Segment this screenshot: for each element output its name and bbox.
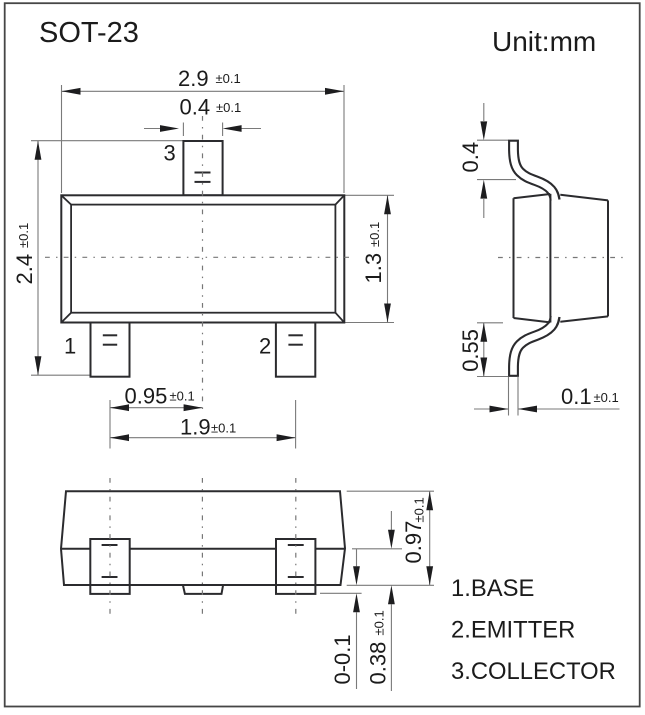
svg-text:±0.1: ±0.1 <box>216 100 241 115</box>
svg-text:0.55: 0.55 <box>458 329 483 372</box>
svg-text:3: 3 <box>164 141 176 166</box>
svg-text:2.9: 2.9 <box>178 66 209 91</box>
svg-text:0.97: 0.97 <box>401 521 426 564</box>
svg-text:0.38: 0.38 <box>366 642 391 685</box>
svg-text:1.BASE: 1.BASE <box>451 575 534 602</box>
svg-text:2.4: 2.4 <box>12 254 37 285</box>
svg-text:1: 1 <box>64 334 76 359</box>
svg-text:1.3: 1.3 <box>361 253 386 284</box>
svg-text:2: 2 <box>259 334 271 359</box>
svg-text:±0.1: ±0.1 <box>412 497 427 522</box>
svg-text:1.9: 1.9 <box>180 415 211 440</box>
svg-text:±0.1: ±0.1 <box>367 222 382 247</box>
svg-text:0.1: 0.1 <box>561 384 592 409</box>
svg-text:3.COLLECTOR: 3.COLLECTOR <box>451 658 616 685</box>
svg-text:Unit:mm: Unit:mm <box>492 26 596 57</box>
svg-text:0.95: 0.95 <box>125 383 168 408</box>
svg-text:2.EMITTER: 2.EMITTER <box>451 617 575 644</box>
svg-text:SOT-23: SOT-23 <box>39 17 139 49</box>
svg-text:0-0.1: 0-0.1 <box>330 634 355 684</box>
svg-text:±0.1: ±0.1 <box>16 223 31 248</box>
svg-text:0.4: 0.4 <box>180 94 211 119</box>
svg-text:±0.1: ±0.1 <box>211 421 236 436</box>
svg-text:±0.1: ±0.1 <box>216 71 241 86</box>
svg-text:±0.1: ±0.1 <box>372 610 387 635</box>
svg-text:±0.1: ±0.1 <box>170 389 195 404</box>
svg-text:±0.1: ±0.1 <box>594 390 619 405</box>
svg-text:0.4: 0.4 <box>458 142 483 173</box>
